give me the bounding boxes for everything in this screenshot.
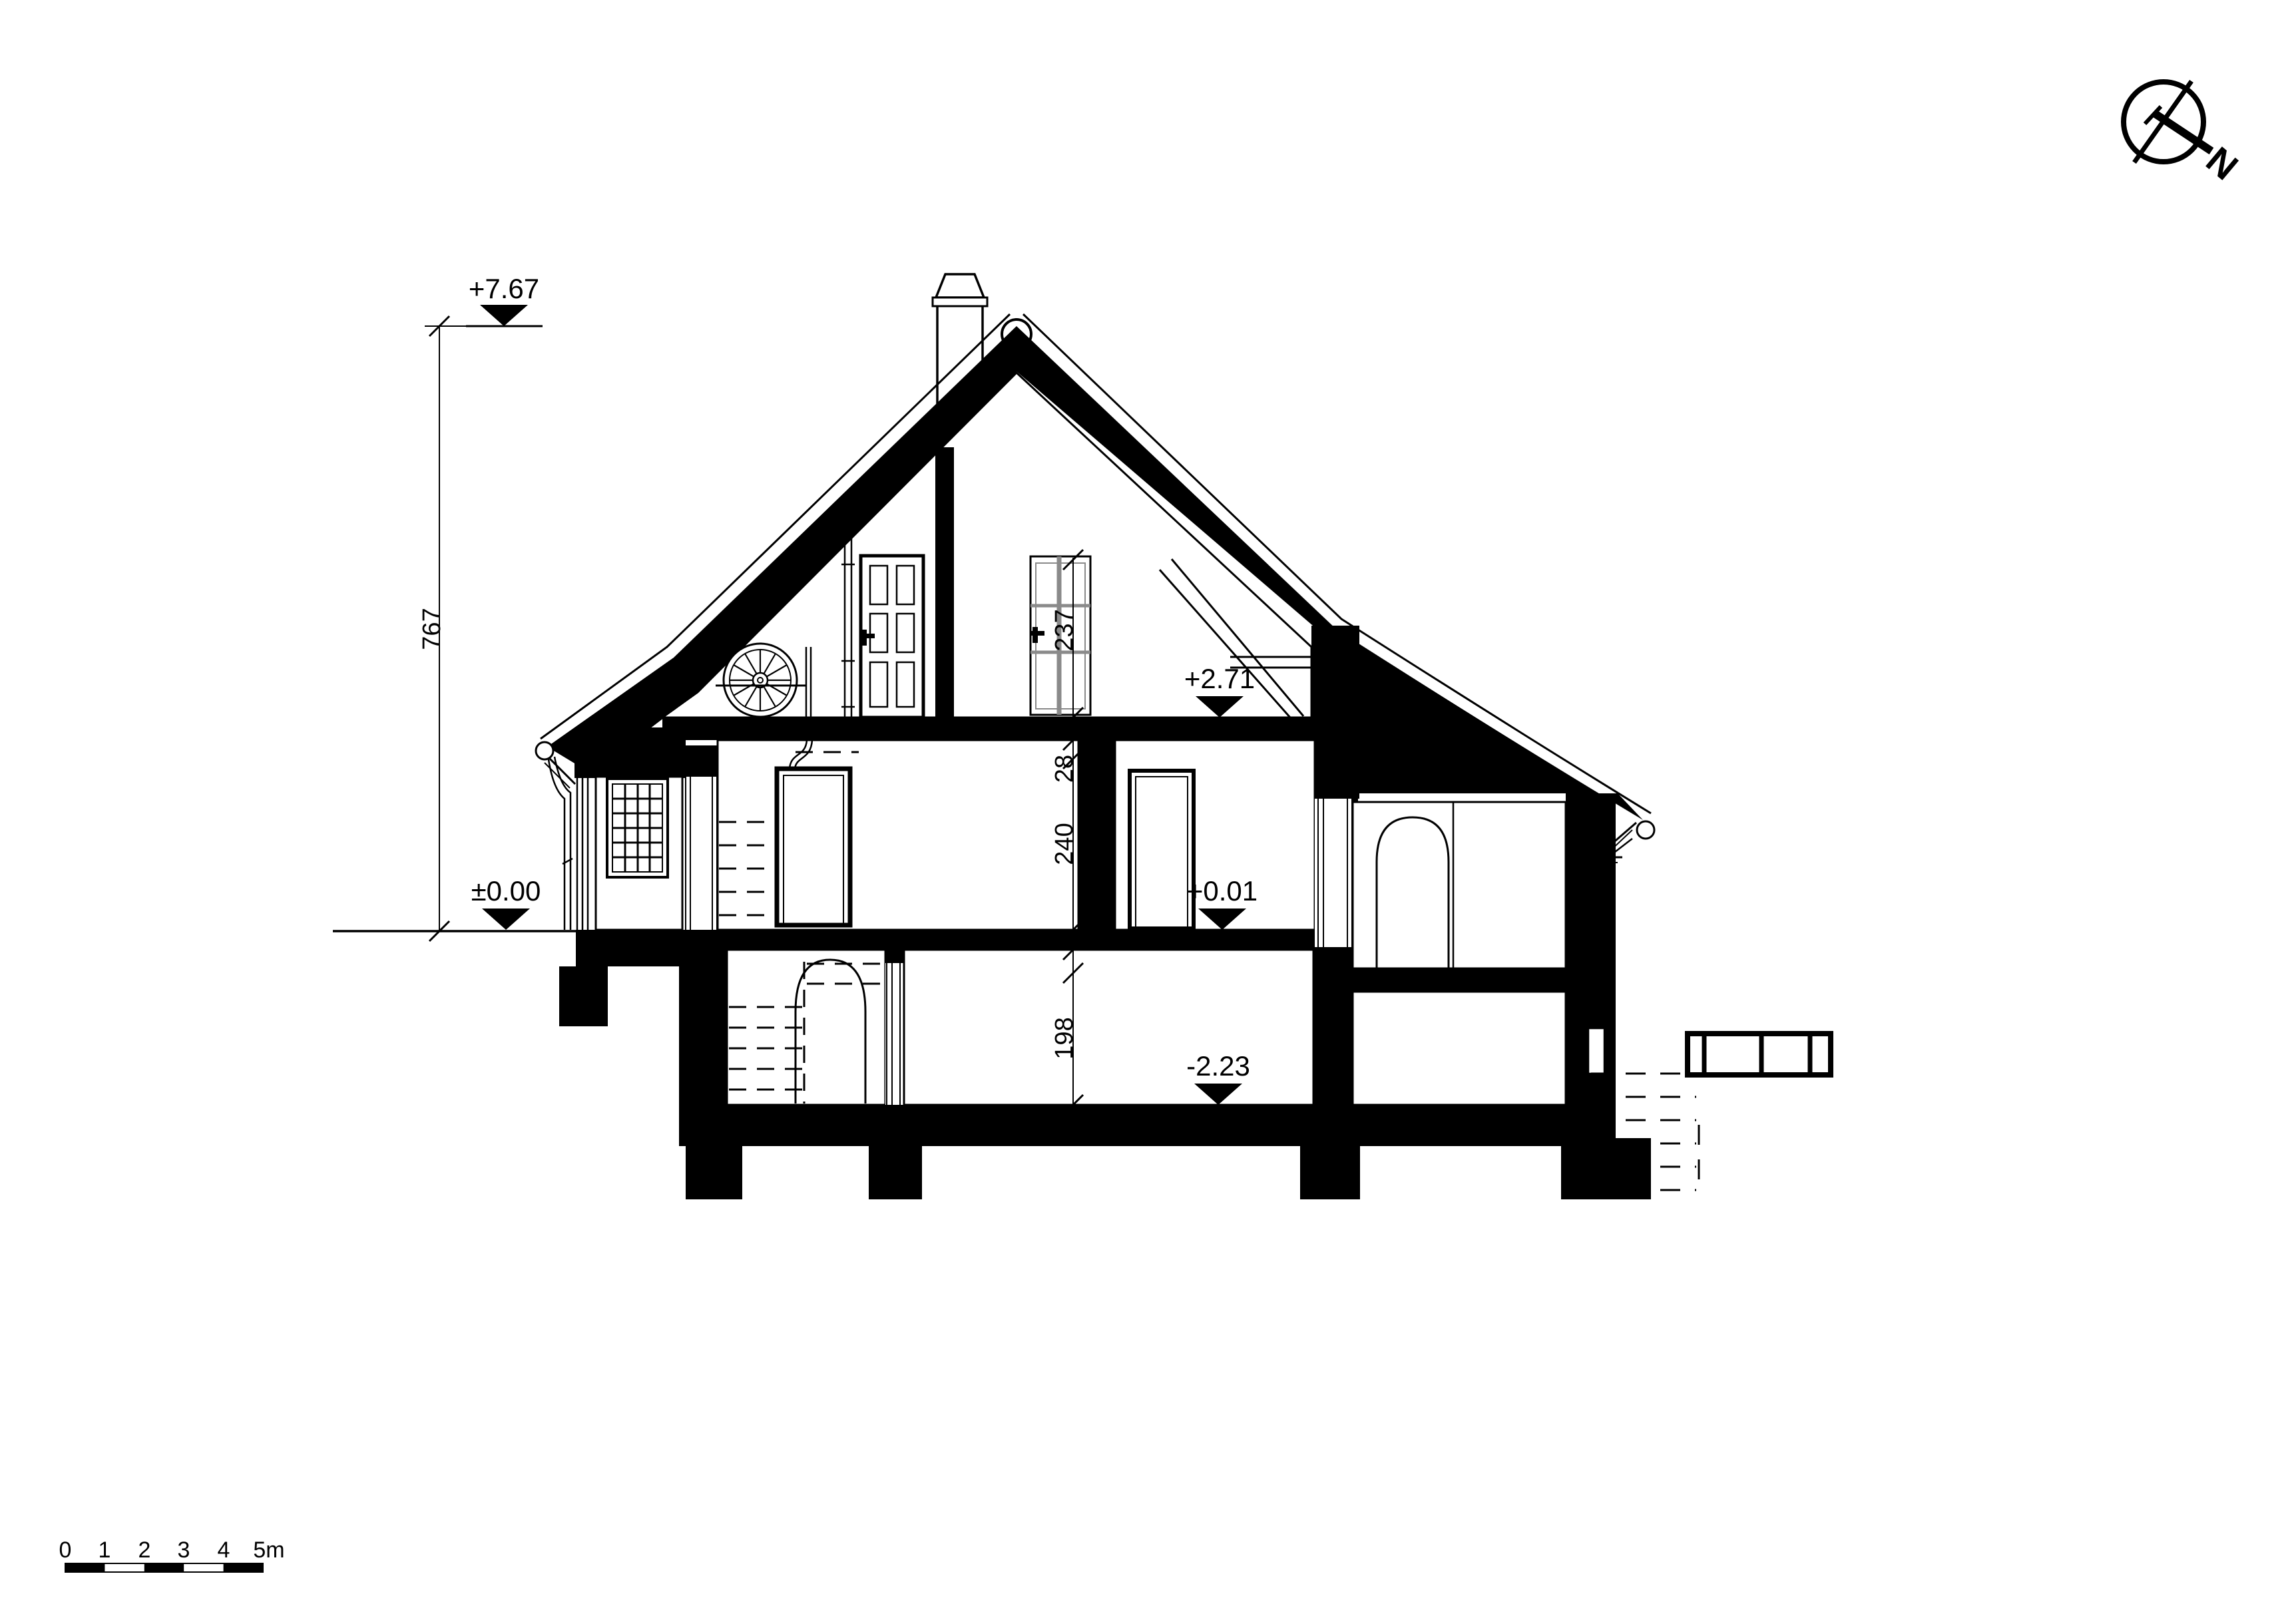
scale-5m: 5m: [253, 1537, 284, 1563]
attic-floor-slab: [662, 717, 1359, 740]
annex-right-wall: [1566, 793, 1616, 1140]
section-drawing: 767 237 28 240 198 +7.67 ±0.00: [0, 0, 2296, 1612]
bsmt-left-wall: [679, 950, 727, 1105]
bsmt-door-lintel: [885, 950, 904, 963]
grating-box: [1688, 1034, 1831, 1075]
level-floor-label: +0.01: [1187, 875, 1258, 907]
gf-right-lintel: [1315, 740, 1359, 799]
level-ground-label: ±0.00: [471, 875, 541, 907]
gf-left-door-frame: [686, 777, 717, 930]
attic-glazed-door-1: [860, 556, 923, 717]
bsmt-door-jamb: [885, 963, 904, 1105]
level-basement-label: -2.23: [1186, 1050, 1250, 1082]
scale-3: 3: [178, 1537, 190, 1563]
gf-left-foundation: [576, 930, 679, 966]
gf-left-lintel: [682, 745, 718, 777]
level-ground: ±0.00: [471, 875, 541, 930]
scale-0: 0: [59, 1537, 72, 1563]
scale-2: 2: [138, 1537, 151, 1563]
level-ridge: +7.67: [466, 273, 543, 326]
scale-1: 1: [99, 1537, 111, 1563]
level-attic-label: +2.71: [1184, 663, 1255, 694]
footing-1: [686, 1146, 742, 1199]
attic-chimney-strip: [935, 447, 954, 717]
architectural-section-sheet: 767 237 28 240 198 +7.67 ±0.00: [0, 0, 2296, 1612]
bsmt-right-wall: [1313, 950, 1353, 1105]
dim-slab-label: 28: [1050, 755, 1078, 783]
bsmt-main-room: [904, 950, 1313, 1105]
gf-left-footing: [559, 966, 608, 1026]
gf-center-wall: [1078, 740, 1115, 930]
gf-hall: [718, 740, 1078, 930]
footing-2: [869, 1146, 922, 1199]
gutter-left: [536, 742, 575, 930]
annex-room: [1353, 802, 1566, 968]
dim-attic-label: 237: [1050, 609, 1078, 651]
scale-4: 4: [218, 1537, 230, 1563]
bsmt-right-room: [1353, 992, 1566, 1105]
bsmt-stair-room: [727, 950, 885, 1105]
tiled-stove: [777, 740, 850, 925]
footing-3: [1300, 1146, 1360, 1199]
dim-basement-label: 198: [1050, 1017, 1078, 1059]
gf-slab: [576, 930, 1359, 950]
lattice-window: [607, 779, 668, 877]
dim-total-height-label: 767: [418, 608, 446, 650]
level-ridge-label: +7.67: [469, 273, 539, 304]
gf-door: [1130, 771, 1194, 928]
dim-ground-label: 240: [1050, 823, 1078, 865]
scale-bar: 0 1 2 3 4 5m: [59, 1537, 285, 1572]
bsmt-slab: [679, 1105, 1616, 1146]
north-arrow-icon: N: [2124, 81, 2246, 188]
